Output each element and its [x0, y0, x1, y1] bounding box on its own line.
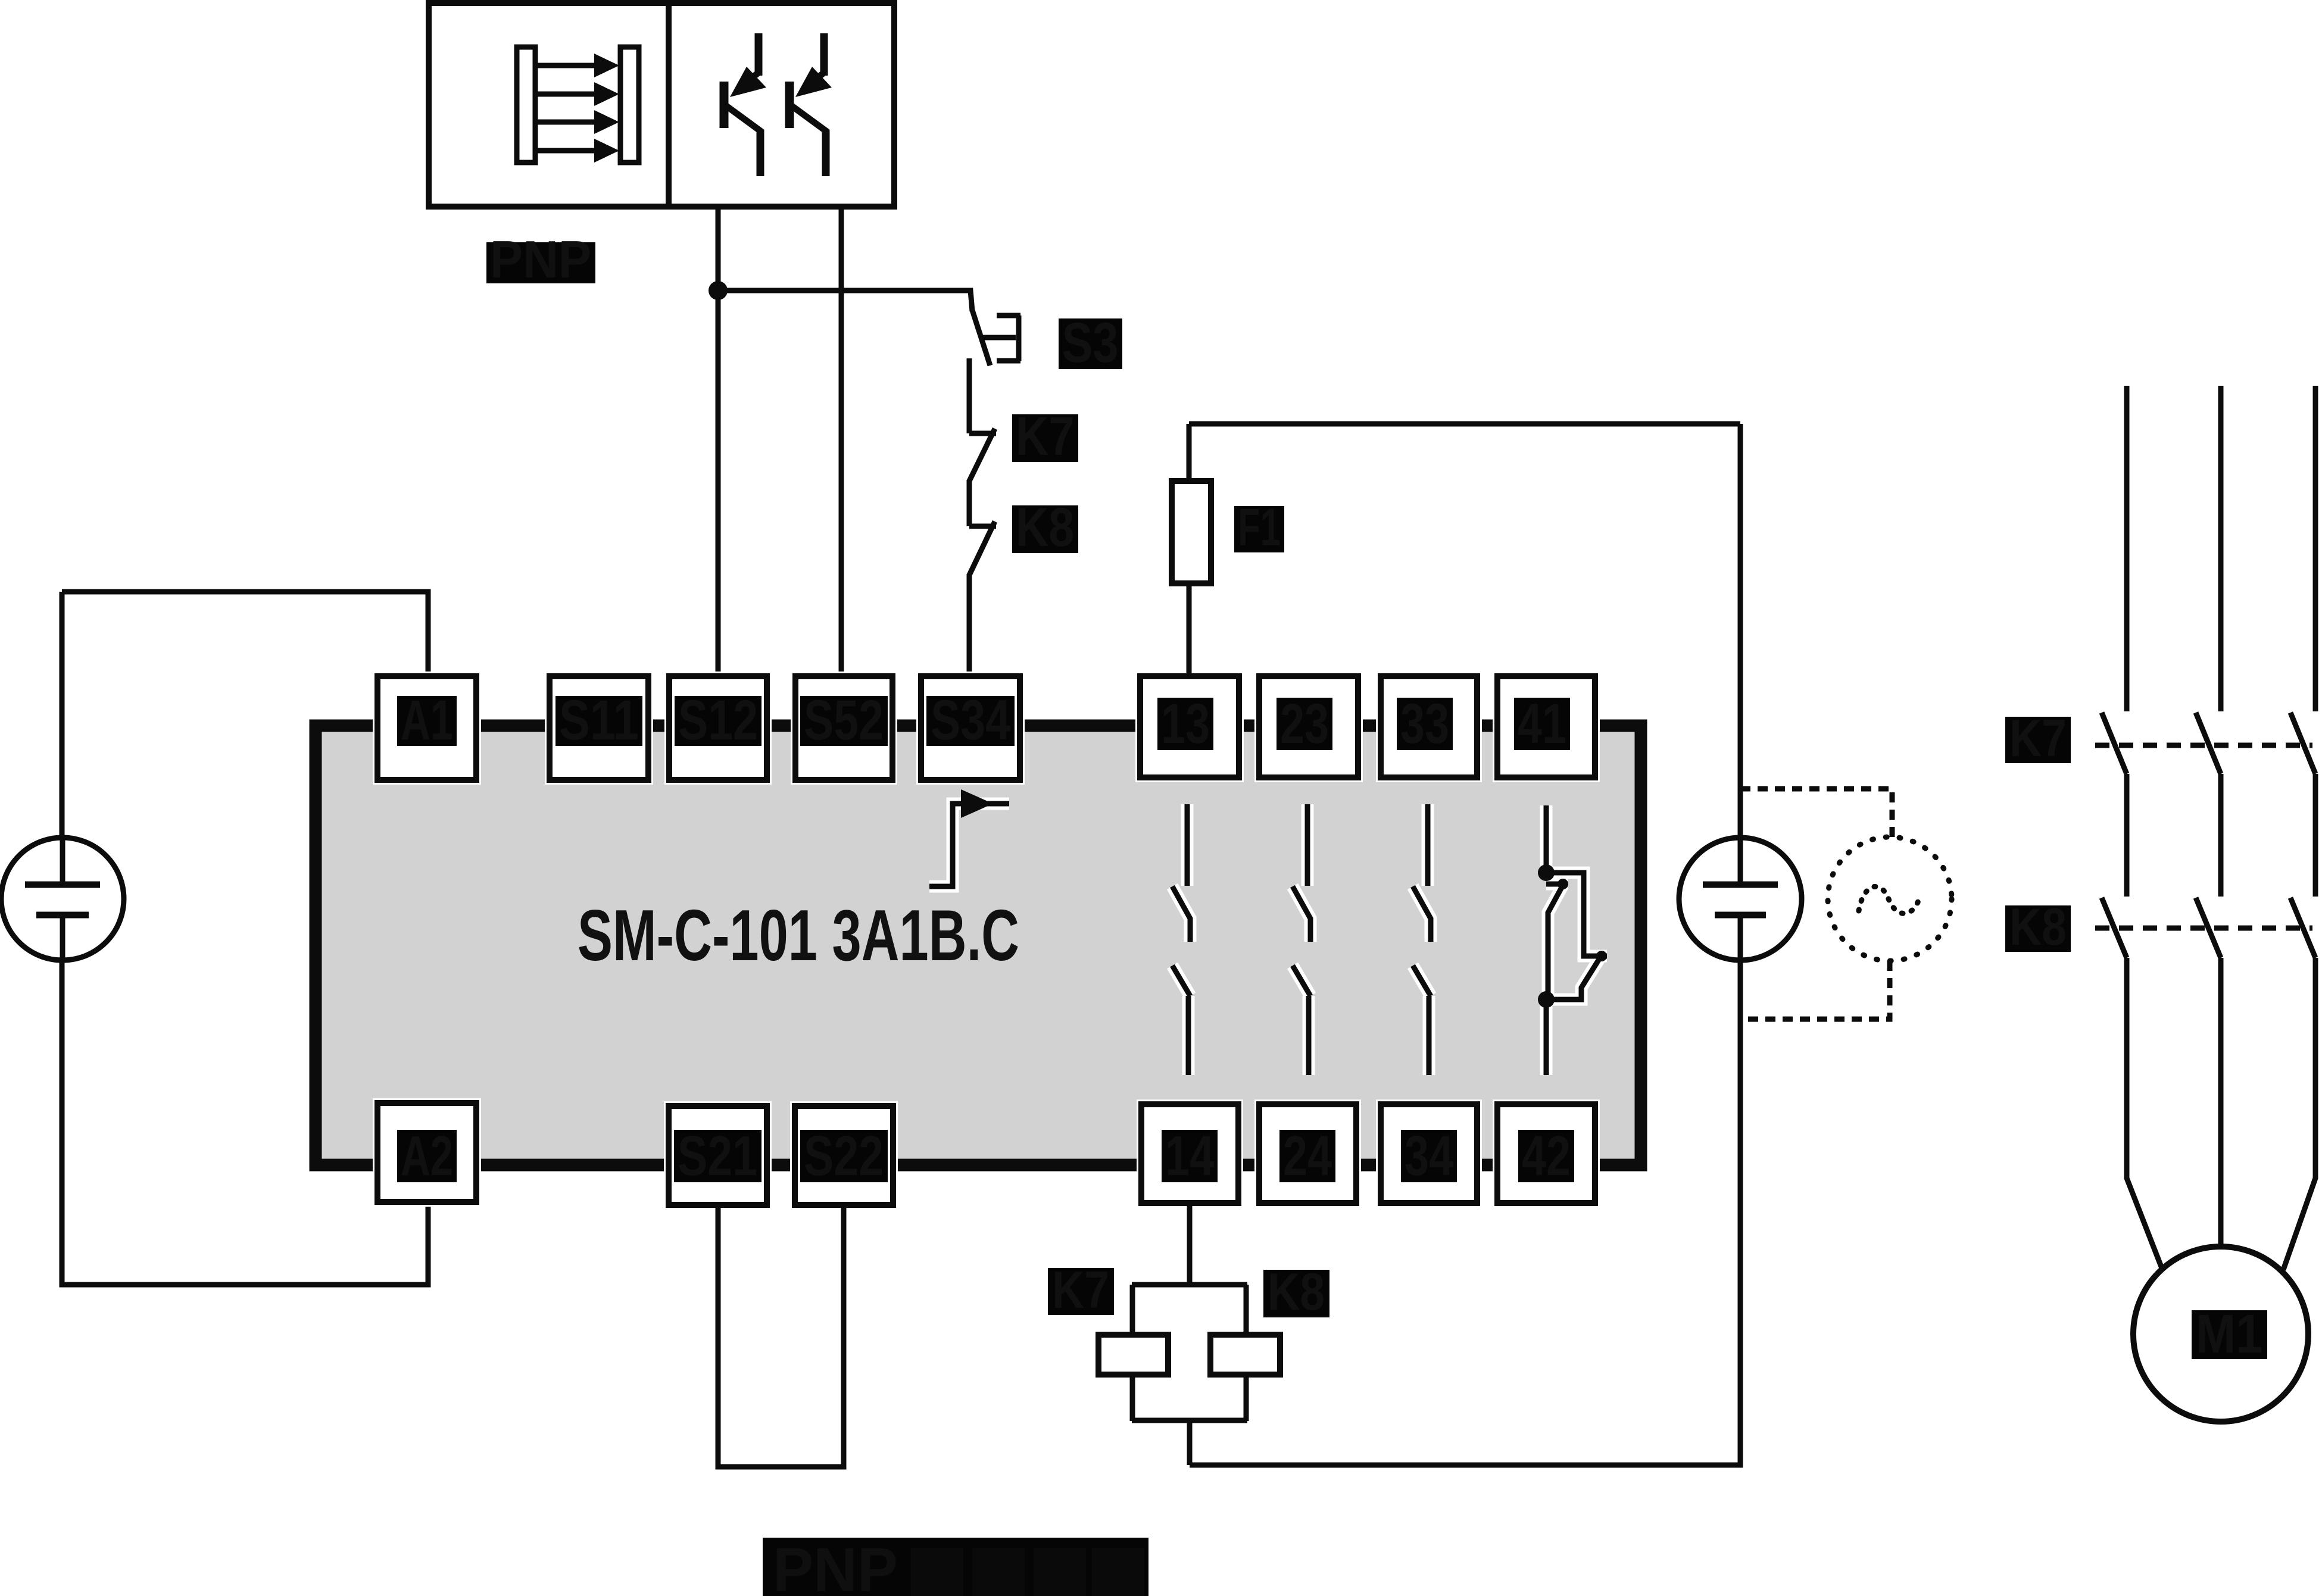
svg-text:S3: S3 — [1062, 311, 1119, 374]
svg-text:34: 34 — [1405, 1125, 1453, 1188]
svg-text:S34: S34 — [931, 689, 1010, 752]
svg-text:S52: S52 — [804, 689, 884, 752]
svg-text:SM-C-101 3A1B.C: SM-C-101 3A1B.C — [578, 895, 1019, 976]
svg-text:33: 33 — [1400, 692, 1449, 755]
svg-text:PNP: PNP — [490, 230, 591, 289]
svg-text:K7: K7 — [1052, 1260, 1109, 1319]
svg-text:M1: M1 — [2196, 1304, 2262, 1364]
svg-text:41: 41 — [1518, 692, 1566, 755]
svg-text:S11: S11 — [559, 689, 639, 752]
svg-text:F1: F1 — [1238, 498, 1281, 557]
svg-text:42: 42 — [1522, 1125, 1571, 1188]
svg-text:S21: S21 — [678, 1125, 757, 1188]
svg-text:24: 24 — [1283, 1125, 1332, 1188]
svg-text:K7: K7 — [2009, 708, 2067, 767]
svg-text:K8: K8 — [1016, 497, 1074, 558]
svg-text:K8: K8 — [2009, 897, 2067, 956]
svg-text:13: 13 — [1161, 692, 1210, 755]
svg-text:K7: K7 — [1016, 406, 1074, 467]
svg-text:A2: A2 — [401, 1125, 453, 1188]
svg-text:S22: S22 — [804, 1125, 884, 1188]
svg-text:S12: S12 — [678, 689, 758, 752]
svg-text:K8: K8 — [1268, 1262, 1325, 1321]
svg-text:A1: A1 — [401, 689, 453, 752]
svg-text:PNP: PNP — [773, 1535, 898, 1596]
svg-text:14: 14 — [1165, 1125, 1214, 1188]
svg-text:23: 23 — [1280, 692, 1329, 755]
